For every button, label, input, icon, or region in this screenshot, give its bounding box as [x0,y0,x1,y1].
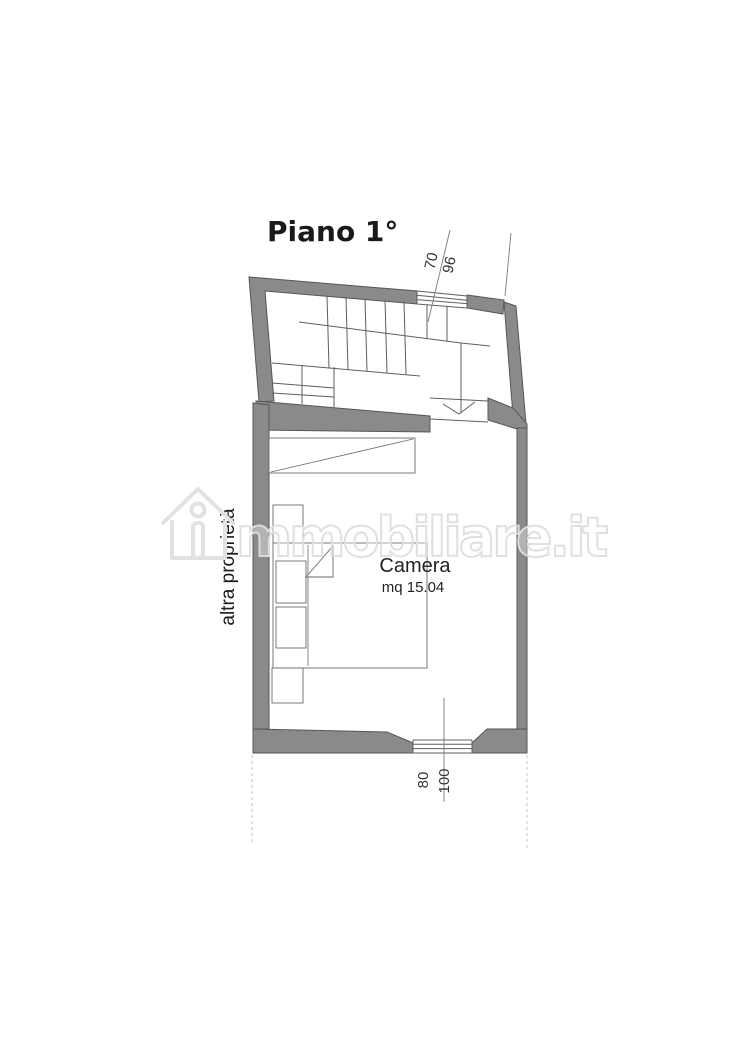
bottom-window [413,740,472,753]
stair-landing-steps [272,365,334,407]
wall-bottom-right [472,729,527,753]
staircase [272,296,490,422]
wall-bottom-left [253,729,413,753]
top-window-ext-line [505,233,511,296]
wall-stair-top-right [467,295,504,314]
chevron-down-icon [443,402,475,414]
room-area-label: mq 15.04 [382,579,445,596]
floorplan-page: Piano 1° 70 96 Camera mq 15.04 80 100 al… [0,0,741,1050]
pillow-bottom [276,607,306,648]
wall-room-right [517,428,527,742]
stair-treads [327,296,447,374]
door-threshold [430,398,488,422]
dim-top-window-inner: 70 [421,251,441,271]
dim-bottom-window-inner: 80 [415,772,432,789]
floorplan-drawing: Piano 1° 70 96 Camera mq 15.04 80 100 al… [0,0,741,1050]
dim-bottom-window-outer: 100 [436,768,453,793]
nightstand [272,668,303,703]
dim-top-window-outer: 96 [439,255,459,275]
stair-winder-edge [272,363,420,376]
watermark-text: mmobiliare.it [236,506,608,569]
top-window [417,291,467,308]
wall-middle [256,401,430,432]
page-title: Piano 1° [267,215,398,248]
